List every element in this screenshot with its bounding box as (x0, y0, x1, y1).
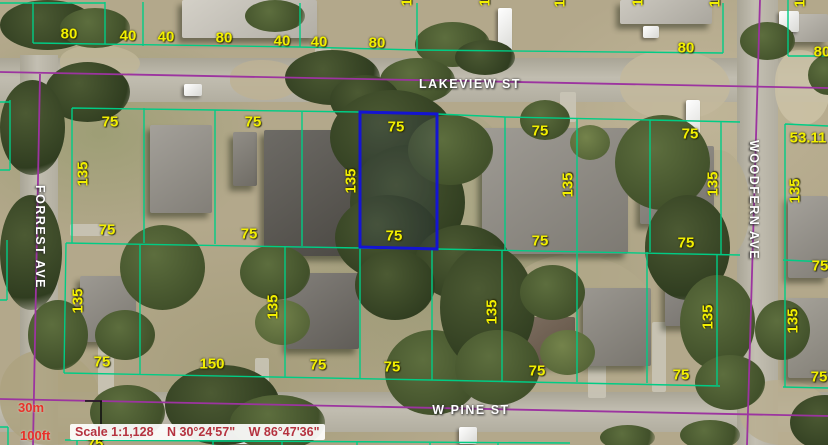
status-longitude: W 86°47'36" (249, 425, 320, 439)
street-label-w-pine: W PINE ST (432, 403, 509, 417)
street-label-forrest: FORREST AVE (33, 185, 47, 289)
highlighted-parcel-outline[interactable] (360, 112, 437, 249)
scale-bar-imperial-label: 100ft (20, 428, 50, 443)
street-label-lakeview: LAKEVIEW ST (419, 77, 521, 91)
status-bar: Scale 1:1,128 N 30°24'57" W 86°47'36" (70, 424, 325, 440)
status-scale: Scale 1:1,128 (75, 425, 154, 439)
status-latitude: N 30°24'57" (167, 425, 235, 439)
map-viewport[interactable]: 8040408040408080801351351351351351351357… (0, 0, 828, 445)
street-label-woodfern: WOODFERN AVE (747, 140, 761, 260)
scale-bar-metric-label: 30m (18, 400, 44, 415)
map-overlay-lines (0, 0, 828, 445)
